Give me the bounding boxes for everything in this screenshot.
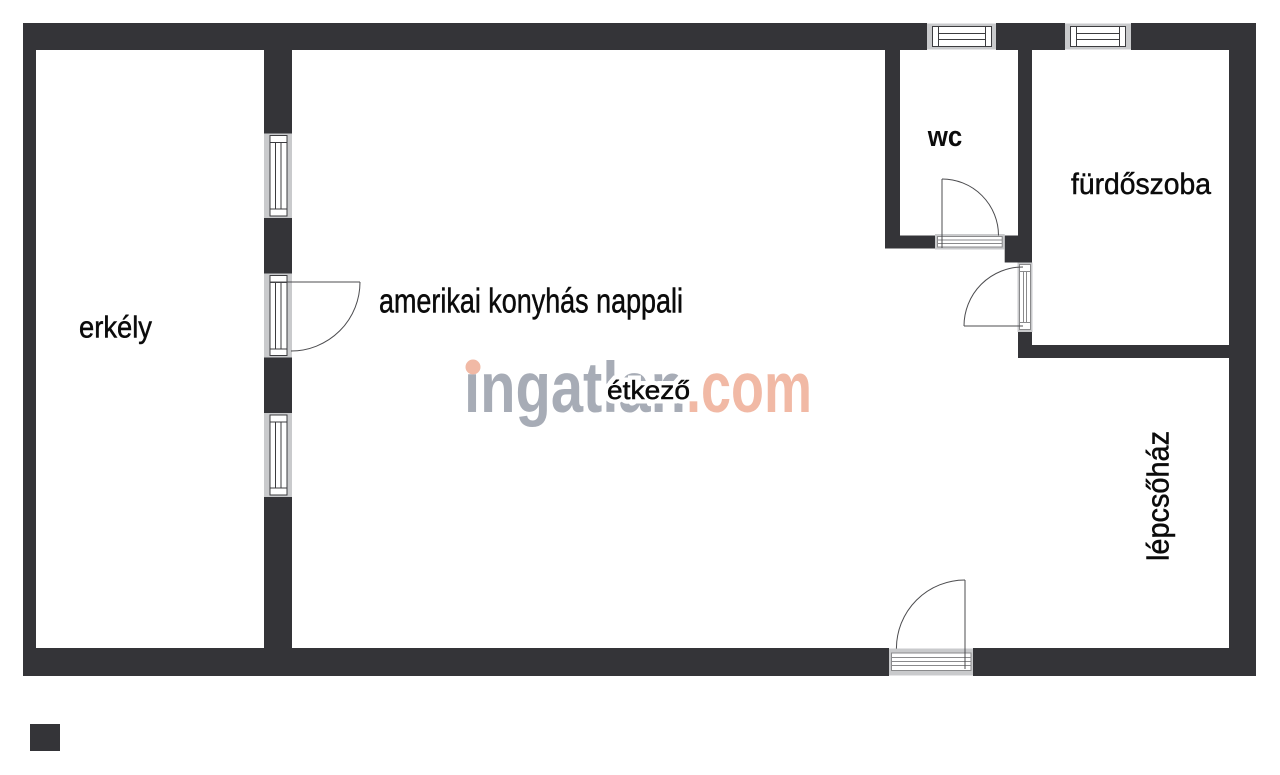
svg-text:lépcsőház: lépcsőház xyxy=(1141,431,1176,561)
svg-text:erkély: erkély xyxy=(79,310,152,345)
svg-text:fürdőszoba: fürdőszoba xyxy=(1071,168,1211,201)
svg-text:amerikai konyhás nappali: amerikai konyhás nappali xyxy=(379,283,683,321)
svg-text:wc: wc xyxy=(927,121,962,153)
svg-text:étkező: étkező xyxy=(607,375,690,405)
svg-text:.com: .com xyxy=(686,349,812,428)
